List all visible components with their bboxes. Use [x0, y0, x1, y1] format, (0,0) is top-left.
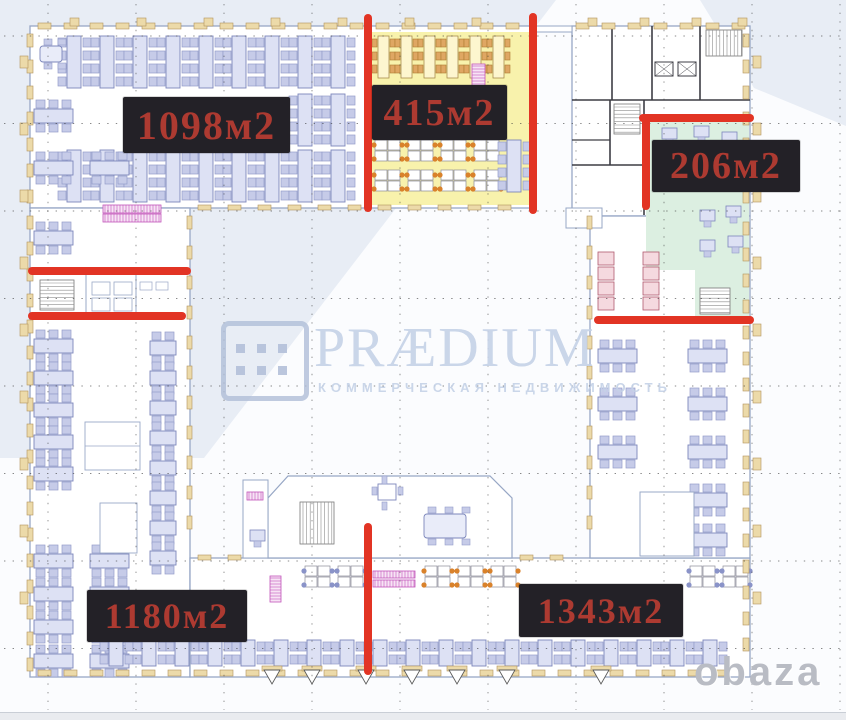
area-label-206: 206м2: [652, 140, 800, 192]
area-label-415: 415м2: [372, 85, 507, 140]
area-label-1180: 1180м2: [87, 590, 247, 642]
obaza-watermark: obaza: [694, 650, 822, 695]
bottom-page-strip: [0, 712, 846, 720]
area-label-1098: 1098м2: [123, 97, 290, 153]
praedium-watermark-text: PRÆDIUM: [314, 316, 596, 380]
floor-plan-page: PRÆDIUM КОММЕРЧЕСКАЯ НЕДВИЖИМОСТЬ 1098м2…: [0, 0, 846, 720]
area-label-1343: 1343м2: [519, 584, 683, 637]
praedium-watermark-subtitle: КОММЕРЧЕСКАЯ НЕДВИЖИМОСТЬ: [318, 380, 672, 395]
praedium-logo-icon: [221, 321, 309, 401]
